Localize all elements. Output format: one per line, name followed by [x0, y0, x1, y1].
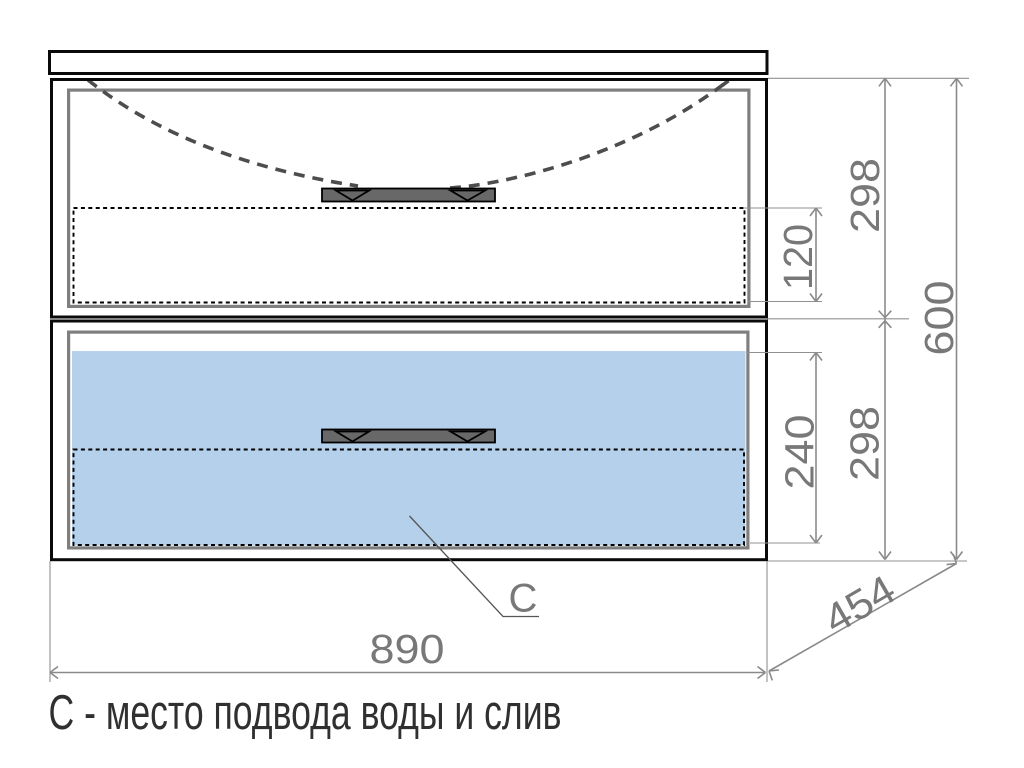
svg-text:С - место подвода воды и слив: С - место подвода воды и слив [49, 686, 562, 740]
svg-text:120: 120 [775, 224, 821, 290]
svg-text:298: 298 [842, 158, 888, 233]
svg-text:454: 454 [816, 566, 903, 643]
svg-text:C: C [509, 577, 538, 621]
svg-text:600: 600 [916, 281, 962, 356]
svg-text:890: 890 [370, 626, 445, 672]
svg-text:240: 240 [777, 415, 823, 490]
svg-text:298: 298 [842, 406, 888, 481]
